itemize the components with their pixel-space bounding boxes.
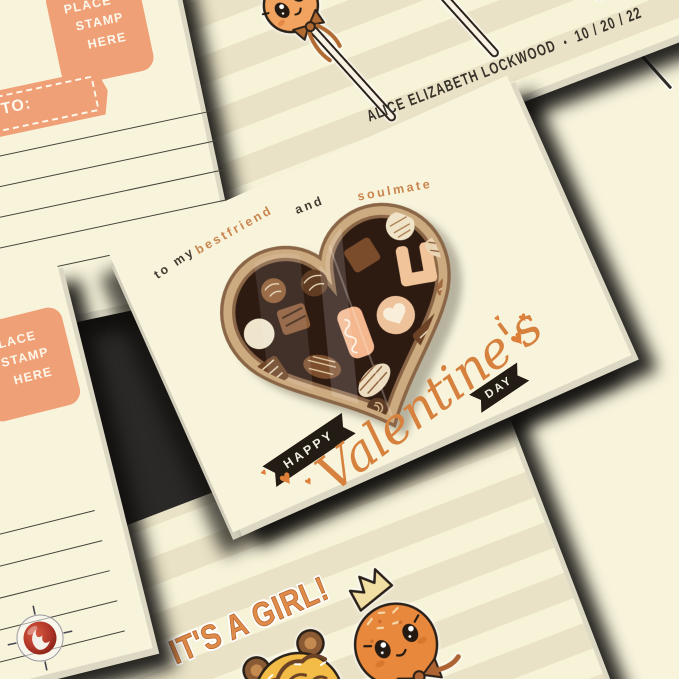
watermark-logo: [4, 602, 76, 674]
stamp-box: PLACE STAMP HERE: [43, 0, 156, 88]
mockup-scene: ALICE ELIZABETH LOCKWOOD • 10 / 20 / 22 …: [0, 0, 679, 679]
heart-icon: ♥: [302, 474, 314, 488]
lollipop-stick-icon: [635, 49, 672, 90]
separator-dot: •: [557, 33, 574, 51]
stamp-box: PLACE STAMP HERE: [0, 305, 83, 425]
